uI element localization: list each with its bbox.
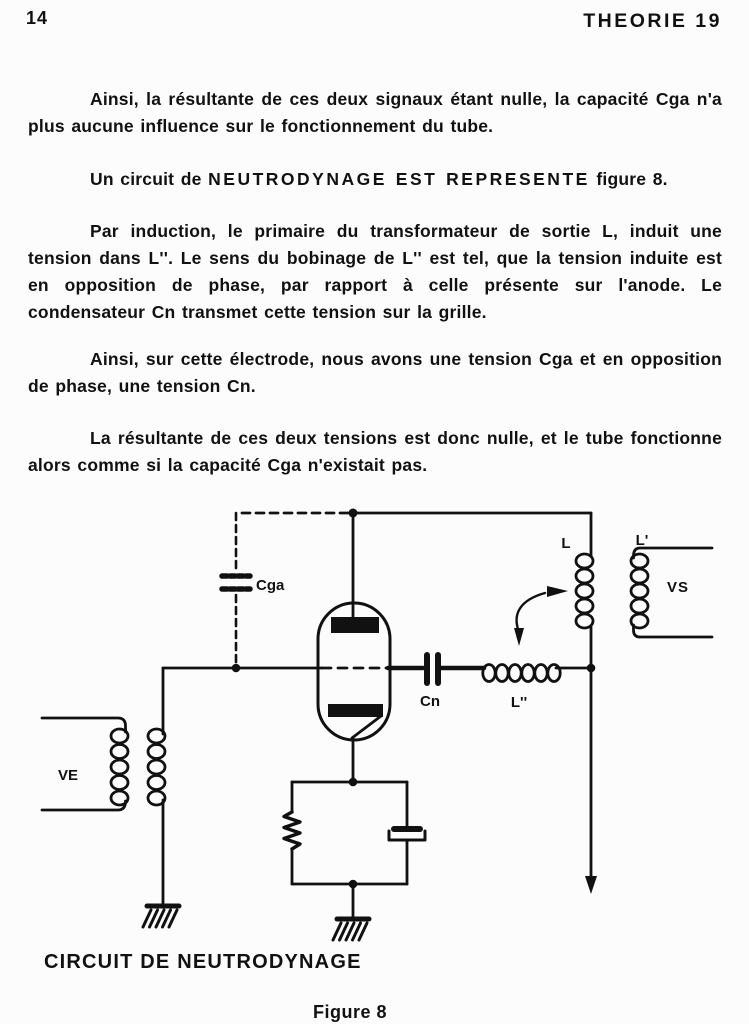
ve-label: VE — [58, 767, 78, 784]
cathode-capacitor-cup — [389, 831, 425, 840]
document-page: 14 THEORIE 19 Ainsi, la résultante de ce… — [0, 0, 749, 1024]
ground-symbol-center — [333, 919, 369, 940]
triode-tube — [163, 513, 390, 782]
l-coil — [576, 554, 593, 628]
ve-primary-coil — [42, 718, 128, 810]
figure-caption: CIRCUIT DE NEUTRODYNAGE — [44, 951, 362, 974]
cathode-resistor — [284, 812, 300, 849]
cga-capacitor — [222, 576, 250, 589]
figure-number: Figure 8 — [280, 1002, 420, 1023]
cga-label: Cga — [256, 577, 285, 594]
l-double-prime-coil — [483, 665, 591, 682]
l-label: L — [561, 535, 570, 552]
coupling-arrow — [514, 586, 568, 646]
anode-plate — [331, 617, 379, 633]
anode-top-wire — [353, 513, 591, 556]
cn-label: Cn — [420, 693, 440, 710]
vs-label: VS — [667, 579, 689, 596]
ve-secondary-coil — [148, 668, 165, 906]
l-double-prime-label: L'' — [511, 694, 527, 711]
l-prime-label: L' — [636, 532, 649, 549]
cn-capacitor — [388, 655, 484, 683]
cathode-plate — [328, 704, 383, 717]
neutrodyne-circuit-diagram: Cga Cn — [0, 0, 749, 1024]
cathode-rc-network — [284, 782, 425, 919]
ground-symbol-left — [143, 906, 179, 927]
